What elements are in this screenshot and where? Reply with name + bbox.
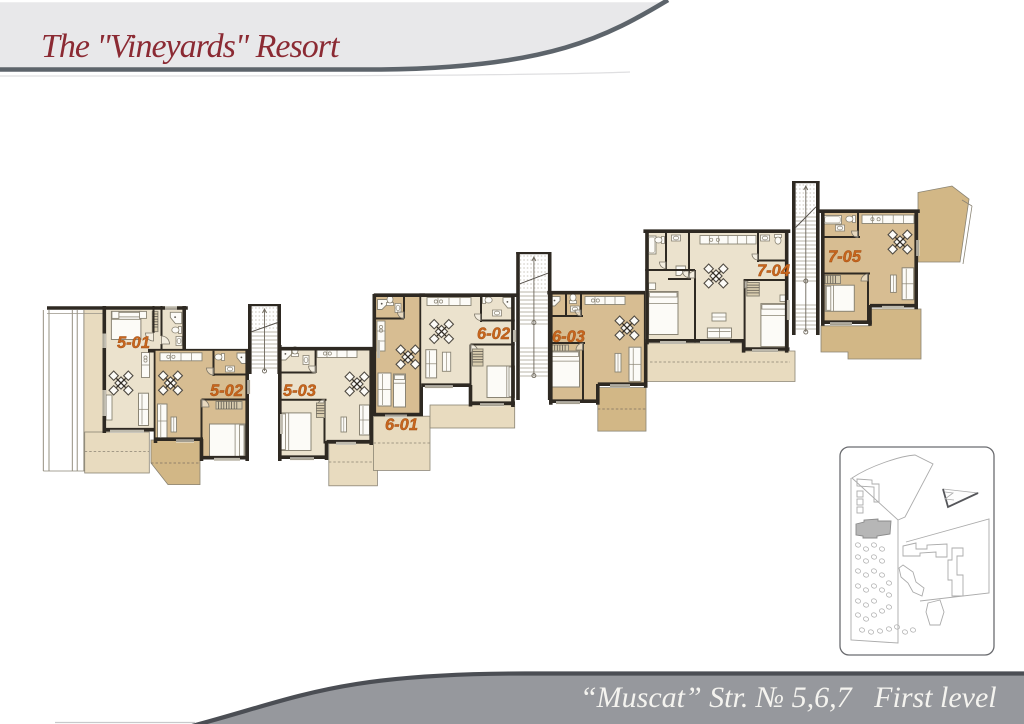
svg-text:7-04: 7-04 (757, 262, 790, 280)
svg-text:7-05: 7-05 (828, 248, 862, 266)
svg-text:“Muscat” Str. № 5,6,7 First: “Muscat” Str. № 5,6,7 First level (580, 681, 997, 714)
svg-text:6-03: 6-03 (552, 328, 585, 346)
svg-text:6-02: 6-02 (477, 325, 510, 343)
svg-text:6-01: 6-01 (385, 416, 418, 434)
svg-text:The "Vineyards" Resort: The "Vineyards" Resort (41, 28, 341, 65)
svg-text:5-03: 5-03 (283, 382, 316, 400)
svg-text:5-01: 5-01 (117, 334, 150, 352)
svg-text:5-02: 5-02 (210, 382, 243, 400)
